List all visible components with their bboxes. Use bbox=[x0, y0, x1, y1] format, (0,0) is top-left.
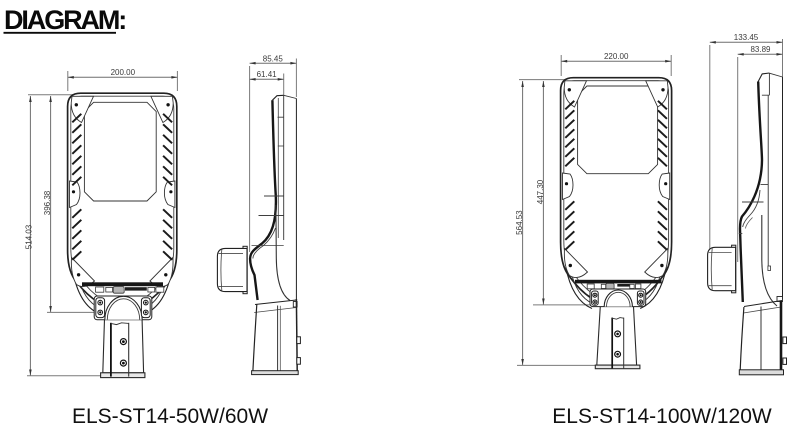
svg-text:200.00: 200.00 bbox=[111, 68, 136, 77]
svg-text:ELS-ST14-50W/60W: ELS-ST14-50W/60W bbox=[72, 405, 268, 428]
svg-text:85.45: 85.45 bbox=[263, 54, 284, 63]
svg-text:447.30: 447.30 bbox=[536, 179, 545, 204]
svg-text:564.53: 564.53 bbox=[515, 210, 524, 235]
svg-text:396.38: 396.38 bbox=[43, 190, 52, 215]
svg-text:133.45: 133.45 bbox=[734, 33, 759, 42]
svg-text:ELS-ST14-100W/120W: ELS-ST14-100W/120W bbox=[552, 405, 772, 428]
svg-text:220.00: 220.00 bbox=[604, 52, 629, 61]
svg-text:514.03: 514.03 bbox=[24, 224, 33, 249]
svg-text:83.89: 83.89 bbox=[750, 45, 771, 54]
svg-text:61.41: 61.41 bbox=[257, 70, 278, 79]
svg-text:DIAGRAM:: DIAGRAM: bbox=[4, 5, 125, 35]
